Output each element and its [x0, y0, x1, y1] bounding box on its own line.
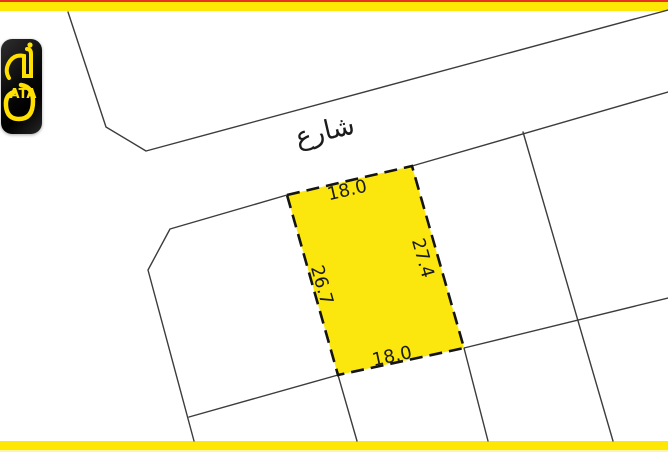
brand-logo: ATA — [1, 39, 42, 134]
left-plot-boundary-line — [148, 195, 287, 441]
street-boundary-line — [68, 10, 668, 151]
plot-map: 18.0 27.4 26.7 18.0 شارع — [0, 0, 668, 452]
brand-logo-text: ATA — [10, 87, 37, 102]
block-north-boundary-line — [412, 92, 668, 166]
plot-division-line — [338, 375, 357, 441]
street-label: شارع — [292, 110, 357, 154]
row-south-boundary-right-line — [464, 298, 668, 348]
row-south-boundary-left-line — [189, 375, 338, 417]
plot-division-line — [464, 348, 488, 441]
brand-logo-icon: ATA — [1, 39, 42, 134]
plot-division-line — [523, 132, 613, 441]
